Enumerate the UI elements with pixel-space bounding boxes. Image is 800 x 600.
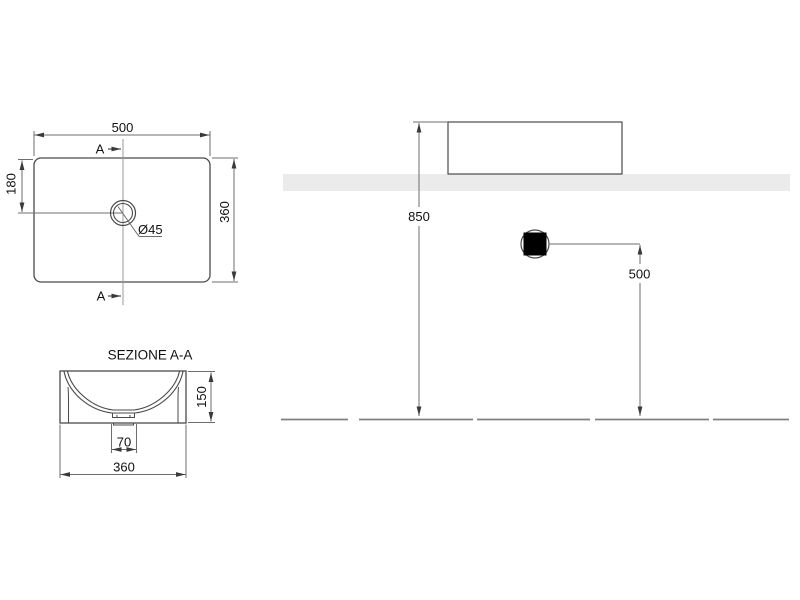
plan-section-marker-top-label: A — [96, 142, 105, 157]
installation-view: 850 500 — [281, 122, 790, 420]
plan-dim-width-label: 500 — [112, 120, 134, 135]
drawing-canvas: 500 180 360 A A Ø45 SEZIONE A-A — [0, 0, 800, 600]
counter-band — [283, 174, 790, 191]
section-dim-drain-label: 70 — [117, 435, 131, 450]
plan-basin-outline — [34, 158, 210, 282]
section-dim-width-label: 360 — [113, 460, 135, 475]
section-title: SEZIONE A-A — [108, 348, 193, 363]
section-dim-height-label: 150 — [194, 386, 209, 408]
install-dim-rim-label: 850 — [408, 209, 430, 224]
install-basin-outline — [448, 122, 622, 174]
section-view: SEZIONE A-A 150 70 360 — [60, 348, 215, 479]
drain-outlet-square — [524, 233, 547, 256]
plan-dim-offset-label: 180 — [4, 173, 19, 195]
plan-drain-diameter-label: Ø45 — [138, 222, 163, 237]
plan-dim-depth-label: 360 — [217, 201, 232, 223]
section-wall-inner-right — [178, 387, 179, 423]
plan-section-marker-bottom-label: A — [97, 289, 106, 304]
technical-drawing: 500 180 360 A A Ø45 SEZIONE A-A — [0, 0, 800, 600]
install-dim-drain-label: 500 — [629, 267, 651, 282]
plan-view: 500 180 360 A A Ø45 — [4, 120, 239, 305]
section-wall-inner-left — [68, 387, 69, 423]
